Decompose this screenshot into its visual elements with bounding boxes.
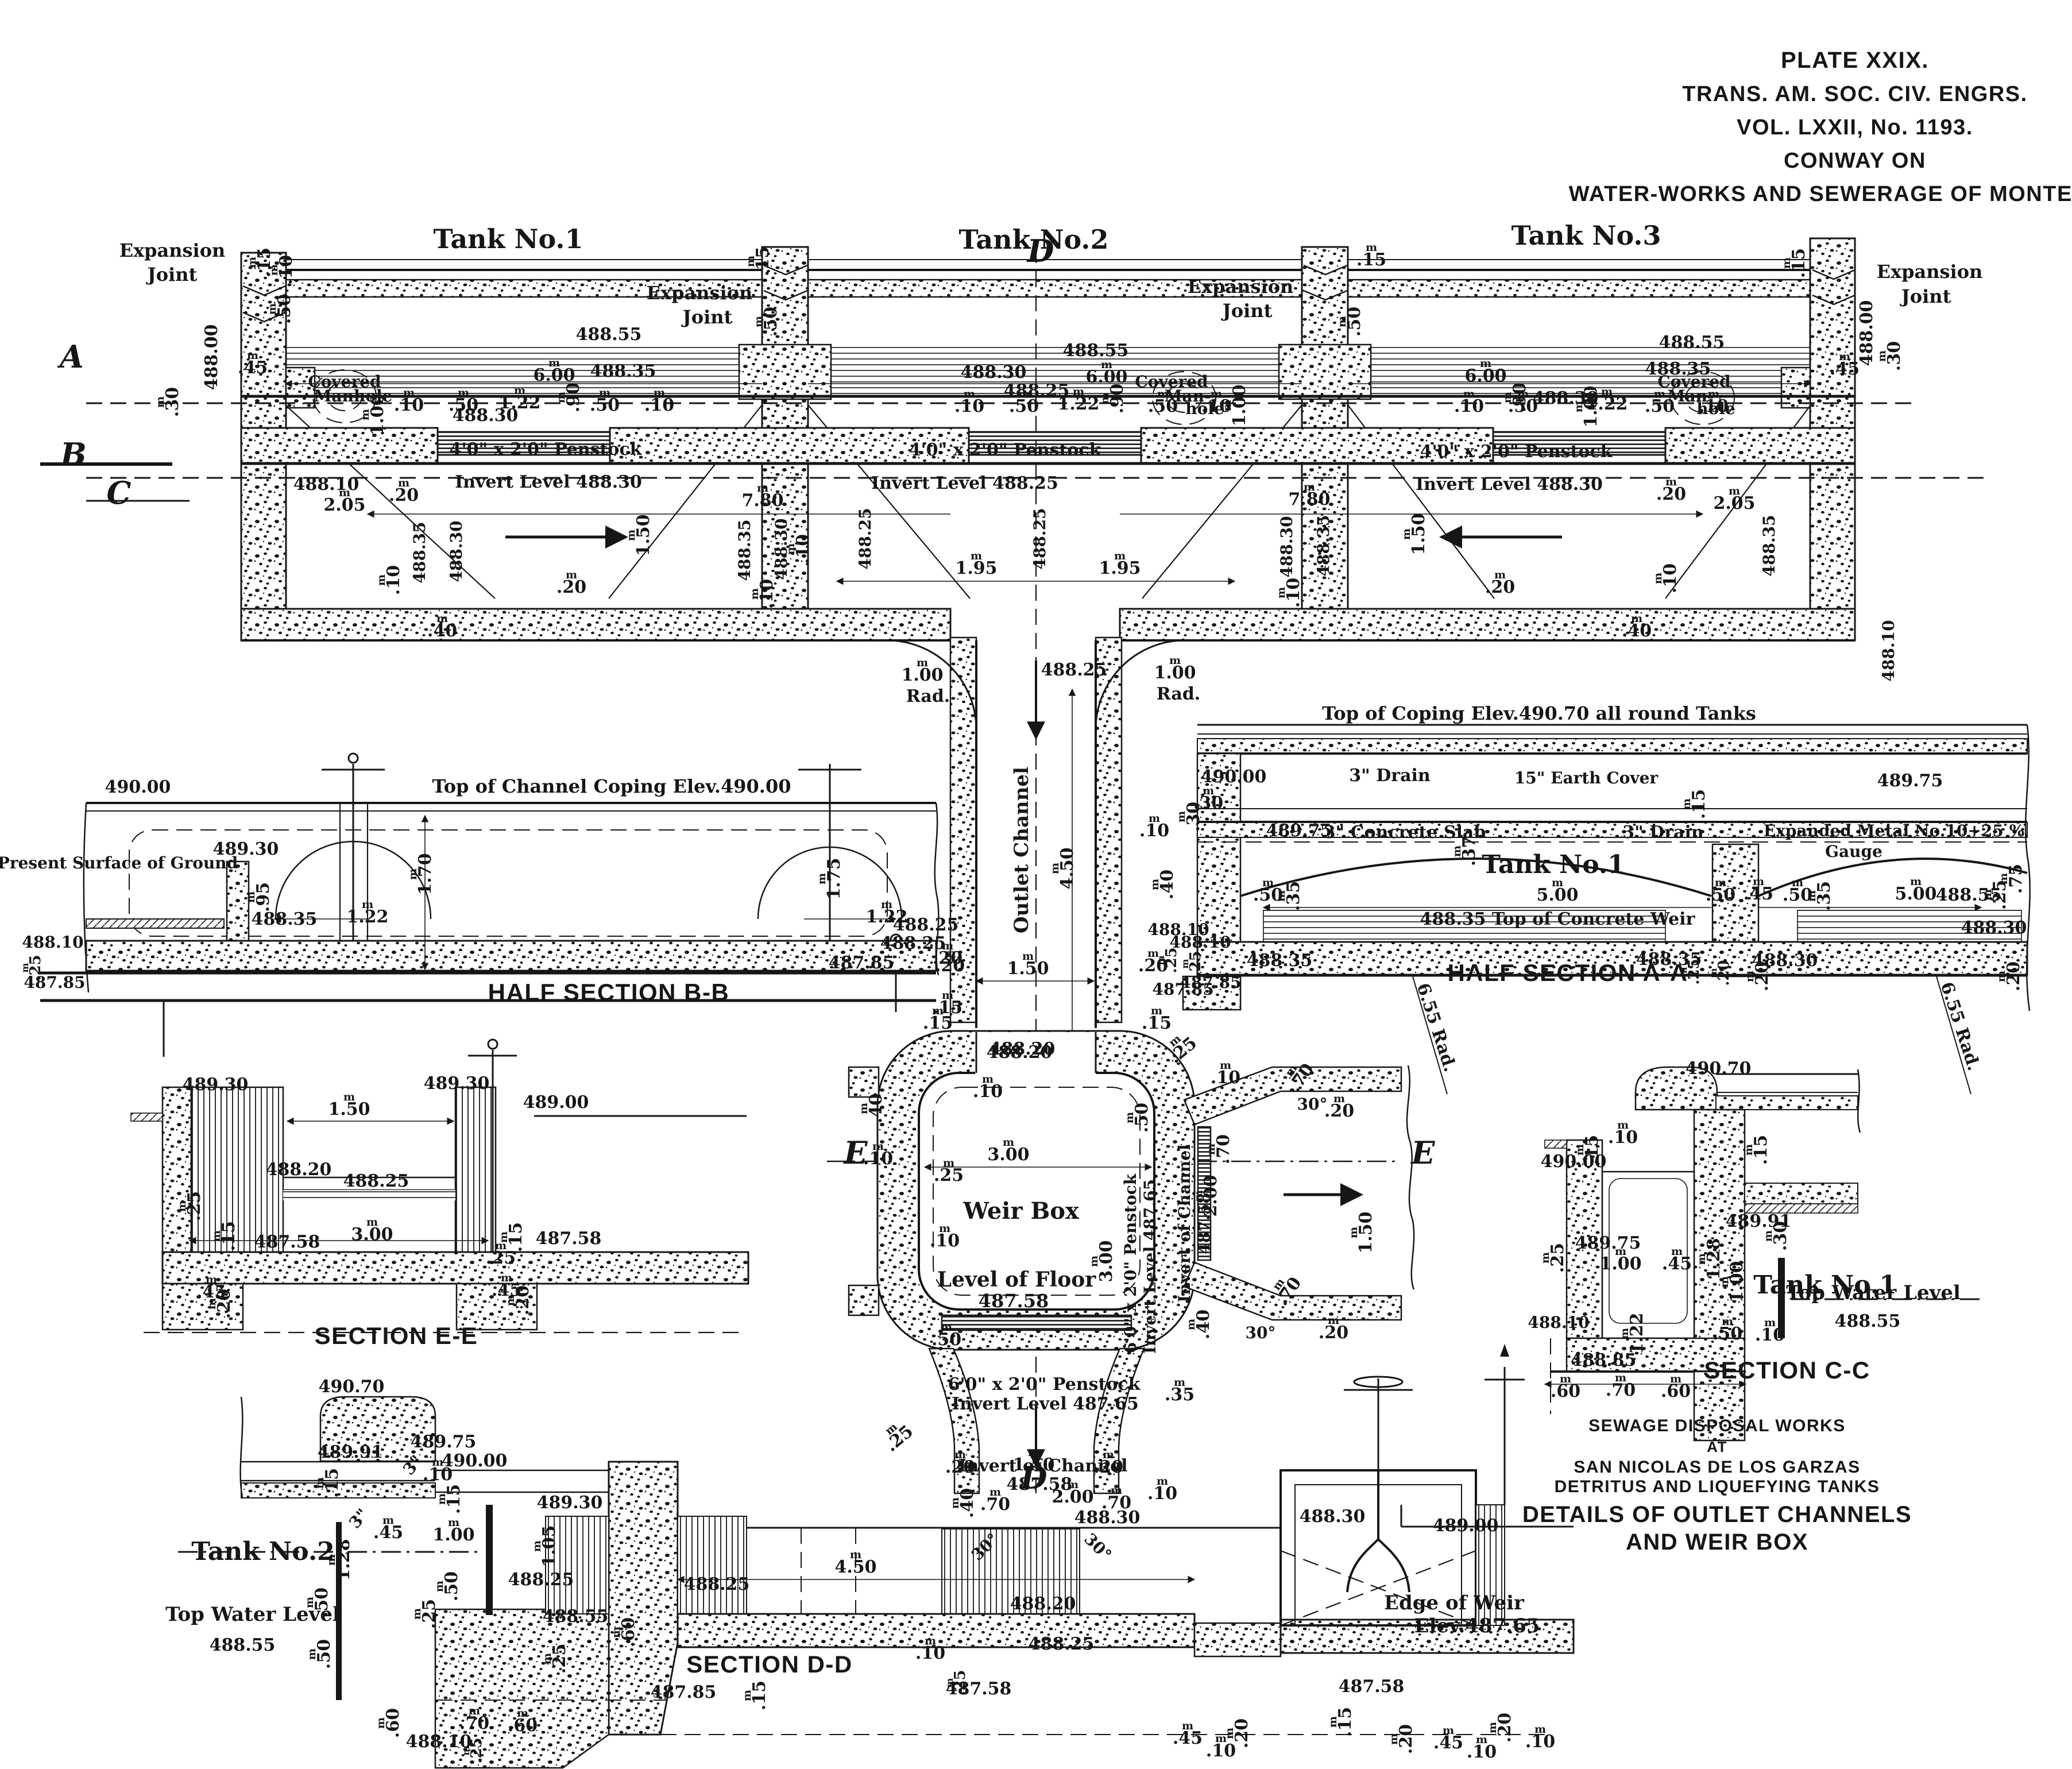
metre-mark: m — [1806, 890, 1818, 902]
label-text: 488.25 — [1029, 1634, 1095, 1654]
label-text: Tank No.1 — [434, 223, 583, 254]
metre-mark: m — [1480, 357, 1491, 370]
half_section_bb-label-13: 487.85 — [24, 973, 85, 992]
metre-mark: m — [1671, 1245, 1683, 1258]
metre-mark: m — [1223, 1728, 1236, 1739]
metre-mark: m — [599, 387, 610, 399]
metre-mark: m — [610, 1627, 623, 1638]
metre-mark: m — [1876, 350, 1888, 362]
metre-mark: m — [246, 257, 258, 268]
label-text: Expansion — [647, 282, 753, 304]
half_section_bb-label-14: 487.85 — [829, 953, 895, 973]
metre-mark: m — [1067, 1478, 1078, 1491]
metre-mark: m — [1157, 388, 1169, 400]
metre-mark: m — [314, 1477, 326, 1489]
metre-mark: m — [495, 1239, 507, 1252]
label-text: 487.85 — [651, 1682, 717, 1702]
label-text: 488.20 — [989, 1039, 1056, 1059]
plan-label-107: Rad. — [906, 686, 950, 706]
plan-label-1: Joint — [146, 264, 198, 285]
plan-label-85: Invert Level 488.30 — [1416, 474, 1603, 495]
label-text: Top of Coping Elev.490.70 all round Tank… — [1322, 702, 1756, 724]
metre-mark: m — [939, 1222, 950, 1235]
label-text: 489.30 — [213, 839, 279, 859]
plate-author: CONWAY ON — [1784, 149, 1926, 173]
metre-mark: m — [971, 550, 982, 562]
label-text: Rad. — [906, 686, 950, 706]
metre-mark: m — [1552, 876, 1563, 889]
label-text: SECTION D-D — [686, 1651, 853, 1678]
label-text: 488.25 — [508, 1570, 574, 1590]
metre-mark: m — [1275, 890, 1288, 902]
plan-label-5: Expansion — [647, 282, 753, 304]
metre-mark: m — [872, 1140, 884, 1153]
metre-mark: m — [566, 569, 577, 581]
metre-mark: m — [964, 388, 975, 400]
section_dd-label-44: 489.00 — [1433, 1516, 1499, 1536]
metre-mark: m — [1617, 1119, 1629, 1131]
metre-mark: m — [1718, 1276, 1731, 1288]
metre-mark: m — [1654, 388, 1665, 400]
label-text: 489.75 — [411, 1432, 477, 1452]
plan-label-71: 488.30 — [447, 520, 466, 582]
caption-line: SEWAGE DISPOSAL WORKS — [1588, 1416, 1846, 1435]
metre-mark: m — [752, 316, 765, 327]
half_section_aa-label-25: 488.30 — [1961, 918, 2027, 938]
label-text: 488.25 — [1041, 660, 1107, 680]
half_section_bb-label-0: 490.00 — [105, 777, 171, 797]
metre-mark: m — [1022, 950, 1034, 963]
metre-mark: m — [757, 482, 768, 495]
metre-mark: m — [448, 1516, 459, 1529]
half_section_aa-label-31: 488.10 — [1147, 920, 1209, 939]
metre-mark: m — [266, 303, 279, 315]
plan-label-22: B — [59, 436, 87, 473]
weir_box-label-40: 30° — [1246, 1323, 1276, 1342]
label-text: 489.75 — [1877, 771, 1943, 791]
label-text: 487.85 — [1152, 980, 1213, 999]
section_dd-label-2: 489.75 — [411, 1432, 477, 1452]
label-text: Joint — [1221, 300, 1273, 322]
metre-mark: m — [1780, 257, 1793, 269]
label-text: SECTION E-E — [315, 1322, 478, 1349]
label-text: 488.25 — [856, 508, 875, 569]
label-text: 15" Earth Cover — [1514, 768, 1659, 787]
plan-label-24: D — [1026, 233, 1054, 269]
section_dd-label-35: 488.30 — [1300, 1507, 1366, 1527]
label-text: 488.25 — [343, 1171, 409, 1191]
metre-mark: m — [382, 1514, 394, 1527]
section_dd-label-18: 488.55 — [210, 1635, 276, 1655]
gate-slot-hatch — [678, 1516, 747, 1614]
metre-mark: m — [917, 656, 928, 669]
metre-mark: m — [433, 1581, 446, 1592]
plan-label-12: 488.00 — [1857, 300, 1877, 366]
metre-mark: m — [1729, 485, 1740, 497]
label-text: 489.30 — [537, 1493, 603, 1513]
label-text: Invert Level 488.30 — [1416, 474, 1603, 495]
label-text: 487.58 — [1195, 1192, 1213, 1254]
label-text: Expanded Metal No.10+25 % — [1764, 821, 2024, 840]
metre-mark: m — [1615, 1372, 1626, 1384]
label-text: Invert Level 487.65 — [1141, 1179, 1159, 1354]
label-text: 490.00 — [1201, 767, 1267, 787]
caption-line: AT — [1707, 1438, 1727, 1455]
plan-label-21: A — [57, 338, 84, 375]
metre-mark: m — [815, 873, 828, 885]
metre-mark: m — [944, 1678, 955, 1687]
section_ee-label-1: 489.30 — [424, 1073, 490, 1094]
metre-mark: m — [1328, 1314, 1339, 1327]
plan-label-53: 488.30 — [961, 362, 1027, 383]
metre-mark: m — [1049, 863, 1061, 874]
label-text: D — [1026, 233, 1054, 269]
label-text: 488.35 — [735, 519, 754, 581]
metre-mark: m — [654, 387, 665, 399]
metre-mark: m — [359, 409, 372, 420]
weir-plate — [486, 1505, 493, 1615]
label-text: 30° — [1297, 1095, 1328, 1114]
label-text: 489.75 — [1266, 821, 1332, 841]
label-text: 487.58 — [254, 1232, 320, 1252]
metre-mark: m — [343, 1091, 355, 1103]
metre-mark: m — [1792, 876, 1803, 889]
metre-mark: m — [748, 588, 761, 600]
label-text: Level of Floor — [937, 1268, 1097, 1292]
section_cc-label-20: 488.10 — [1528, 1313, 1589, 1332]
metre-mark: m — [982, 1073, 994, 1086]
section_ee-label-7: 487.58 — [254, 1232, 320, 1252]
weir_box-label-21: 6'0" x 2'0" Penstock — [1121, 1173, 1140, 1353]
label-text: Invert Level 488.25 — [871, 473, 1058, 493]
metre-mark: m — [1211, 388, 1222, 400]
metre-mark: m — [1652, 573, 1664, 584]
metre-mark: m — [469, 1705, 480, 1717]
label-text: Weir Box — [962, 1198, 1080, 1225]
weir_box-label-0: 488.20 — [989, 1039, 1056, 1059]
metre-mark: m — [1205, 1144, 1217, 1155]
metre-mark: m — [461, 1745, 471, 1755]
label-text: Rad. — [1157, 684, 1200, 704]
section_dd-label-37: 488.20 — [1010, 1594, 1076, 1614]
metre-mark: m — [362, 898, 373, 911]
label-text: 489.30 — [424, 1073, 490, 1094]
metre-mark: m — [1099, 393, 1111, 404]
metre-mark: m — [514, 384, 525, 397]
metre-mark: m — [1387, 1733, 1400, 1745]
metre-mark: m — [1708, 968, 1719, 978]
label-text: Gauge — [1825, 842, 1882, 861]
section_dd-label-10: Tank No.2 — [191, 1537, 335, 1566]
metre-mark: m — [1327, 1716, 1339, 1728]
label-text: 488.30 — [1300, 1507, 1366, 1527]
metre-mark: m — [541, 1653, 554, 1664]
half_section_aa-label-0: Top of Coping Elev.490.70 all round Tank… — [1322, 702, 1756, 724]
label-text: 487.58 — [536, 1229, 602, 1249]
metre-mark: m — [1665, 476, 1677, 488]
label-text: 488.30 — [1277, 516, 1296, 577]
label-text: 488.55 — [210, 1635, 276, 1655]
metre-mark: m — [850, 1548, 861, 1561]
metre-mark: m — [925, 1635, 936, 1647]
label-text: 488.35 — [1760, 515, 1779, 576]
weir_box-label-5: 30° — [1297, 1095, 1328, 1114]
label-text: Present Surface of Ground — [0, 853, 238, 872]
metre-mark: m — [501, 1272, 512, 1284]
metre-mark: m — [1333, 1092, 1345, 1105]
weir_box-label-43: E — [1410, 1134, 1435, 1171]
label-text: 30° — [1246, 1323, 1276, 1342]
metre-mark: m — [784, 543, 797, 555]
label-text: 488.35 — [1247, 951, 1313, 971]
plan-label-84: Invert Level 488.25 — [871, 473, 1058, 493]
label-text: 3" Drain — [1349, 766, 1431, 786]
label-text: 488.10 — [22, 933, 83, 952]
plan-label-82: 4'0" x 2'0" Penstock — [1420, 442, 1613, 462]
label-text: 487.85 — [24, 973, 85, 992]
label-text: 6'0" x 2'0" Penstock — [1121, 1173, 1140, 1353]
half_section_aa-label-9: 3" Drain — [1622, 822, 1704, 843]
label-text: 488.30 — [961, 362, 1027, 383]
metre-mark: m — [1073, 385, 1084, 398]
metre-mark: m — [1742, 1144, 1755, 1156]
metre-mark: m — [1494, 569, 1506, 581]
label-text: Elev.487.65 — [1414, 1614, 1540, 1637]
metre-mark: m — [1114, 550, 1126, 562]
plan-label-81: 4'0" x 2'0" Penstock — [909, 440, 1102, 460]
section_ee-label-8: 487.58 — [536, 1229, 602, 1249]
section_cc-label-0: 490.70 — [1686, 1059, 1752, 1079]
label-text: Tank No.2 — [191, 1537, 335, 1566]
metre-mark: m — [1753, 875, 1764, 888]
label-text: Top Water Level — [165, 1603, 340, 1626]
weir_box-label-28: Invert of Channel — [958, 1456, 1127, 1476]
plan-label-8: Joint — [1221, 300, 1273, 322]
metre-mark: m — [206, 1298, 218, 1310]
metre-mark: m — [210, 1230, 223, 1242]
weir_box-label-25: Invert Level 487.65 — [952, 1394, 1139, 1414]
half_section_aa-label-4: 489.75 — [1877, 771, 1943, 791]
metre-mark: m — [1910, 875, 1922, 888]
metre-mark: m — [548, 357, 560, 369]
plan-label-29: 488.55 — [576, 325, 642, 345]
caption-title: DETAILS OF OUTLET CHANNELS — [1522, 1502, 1912, 1527]
label-text: 488.55 — [1063, 341, 1129, 361]
section_dd-label-13: 489.30 — [537, 1493, 603, 1513]
plan-label-31: 488.55 — [1659, 333, 1725, 353]
label-text: 487.85 — [829, 953, 895, 973]
plan-label-32: 488.35 — [590, 361, 656, 381]
label-text: 488.30 — [447, 520, 466, 582]
label-text: Edge of Weir — [1384, 1592, 1525, 1614]
label-text: A — [57, 338, 84, 375]
metre-mark: m — [943, 1157, 954, 1169]
plan-label-76: 488.35 — [1760, 515, 1779, 576]
metre-mark: m — [1111, 1484, 1122, 1497]
metre-mark: m — [1534, 1723, 1546, 1736]
weir_box-label-19: 487.58 — [979, 1290, 1049, 1312]
label-text: Outlet Channel — [1010, 767, 1033, 933]
label-text: 488.35 — [410, 522, 429, 583]
label-text: 488.00 — [202, 325, 222, 391]
label-text: 3" Drain — [1622, 822, 1704, 843]
metre-mark: m — [1695, 1253, 1708, 1265]
metre-mark: m — [1151, 1005, 1162, 1017]
plate-society: TRANS. AM. SOC. CIV. ENGRS. — [1682, 82, 2027, 106]
metre-mark: m — [555, 392, 567, 403]
metre-mark: m — [1451, 845, 1463, 857]
metre-mark: m — [176, 1200, 188, 1212]
section_dd-label-0: 490.70 — [319, 1377, 385, 1397]
plan-label-30: 488.55 — [1063, 341, 1129, 361]
label-text: 488.25 — [893, 915, 959, 935]
half_section_aa-label-33: 487.85 — [1152, 980, 1213, 999]
metre-mark: m — [245, 891, 257, 903]
engraving-plate: PLATE XXIX. TRANS. AM. SOC. CIV. ENGRS. … — [0, 0, 2072, 1769]
metre-mark: m — [268, 264, 280, 276]
metre-mark: m — [366, 1216, 378, 1229]
label-text: 6'0" x 2'0" Penstock — [948, 1374, 1141, 1395]
metre-mark: m — [1101, 358, 1112, 371]
section_dd-label-17: Top Water Level — [165, 1603, 340, 1626]
metre-mark: m — [1722, 1315, 1733, 1328]
label-text: 488.00 — [1857, 300, 1877, 366]
label-text: Expansion — [119, 240, 226, 261]
metre-mark: m — [504, 1295, 517, 1306]
plan-label-11: 488.00 — [202, 325, 222, 391]
weir_box-label-16: Weir Box — [962, 1198, 1080, 1225]
label-text: 488.35 Top of Concrete Weir — [1420, 909, 1696, 929]
metre-mark: m — [741, 1690, 753, 1701]
metre-mark: m — [374, 1717, 387, 1729]
metre-mark: m — [941, 1321, 952, 1334]
half_section_aa-label-3: 15" Earth Cover — [1514, 768, 1659, 787]
label-text: Joint — [681, 306, 733, 328]
label-text: 489.30 — [183, 1075, 249, 1095]
section_dd-label-45: SECTION D-D — [686, 1651, 853, 1678]
metre-mark: m — [411, 1608, 423, 1620]
section_ee-label-5: 488.25 — [343, 1171, 409, 1191]
label-text: 487.58 — [1339, 1677, 1405, 1697]
metre-mark: m — [1262, 876, 1274, 889]
metre-mark: m — [1018, 388, 1030, 400]
label-text: Invert Level 487.65 — [952, 1394, 1139, 1414]
plan-label-74: 488.30 — [1277, 516, 1296, 577]
metre-mark: m — [1174, 1376, 1185, 1389]
label-text: 4'0" x 2'0" Penstock — [909, 440, 1102, 460]
section_cc-label-16: Top Water Level — [1786, 1281, 1961, 1304]
label-text: 4'0" x 2'0" Penstock — [450, 439, 643, 459]
section_dd-label-42: Edge of Weir — [1384, 1592, 1525, 1614]
metre-mark: m — [339, 486, 350, 499]
metre-mark: m — [1155, 955, 1166, 965]
weir_box-label-18: Level of Floor — [937, 1268, 1097, 1292]
half_section_bb-label-1: Top of Channel Coping Elev.490.00 — [432, 775, 791, 797]
plan-label-7: Expansion — [1188, 276, 1294, 298]
label-text: 490.70 — [319, 1377, 385, 1397]
plan-label-109: Rad. — [1157, 684, 1200, 704]
metre-mark: m — [247, 349, 258, 362]
metre-mark: m — [1981, 889, 1994, 901]
label-text: 488.25 — [1030, 508, 1049, 569]
metre-mark: m — [1708, 388, 1719, 400]
label-text: 488.55 — [543, 1606, 609, 1627]
label-text: 488.10 — [1528, 1313, 1589, 1332]
plate-number: PLATE XXIX. — [1781, 48, 1929, 73]
plate-subject: WATER-WORKS AND SEWERAGE OF MONTERREY. — [1569, 182, 2072, 206]
label-text: 488.35 — [1314, 515, 1333, 576]
label-text: 488.55 — [1659, 333, 1725, 353]
label-text: 489.75 — [1575, 1233, 1641, 1253]
plan-label-9: Expansion — [1877, 261, 1983, 283]
metre-mark: m — [1539, 1252, 1552, 1264]
section_cc-label-17: 488.55 — [1835, 1311, 1901, 1331]
section_cc-label-7: 489.75 — [1575, 1233, 1641, 1253]
plan-label-2: Tank No.1 — [434, 223, 583, 254]
metre-mark: m — [1574, 1144, 1586, 1156]
section_dd-label-26: 487.85 — [651, 1682, 717, 1702]
metre-mark: m — [1601, 385, 1613, 398]
caption-title: AND WEIR BOX — [1626, 1529, 1808, 1555]
label-text: Top Water Level — [1786, 1281, 1961, 1304]
label-text: 489.00 — [523, 1092, 589, 1113]
plate-volume: VOL. LXXII, No. 1193. — [1737, 115, 1973, 140]
caption-line: SAN NICOLAS DE LOS GARZAS — [1574, 1458, 1860, 1477]
metre-mark: m — [1486, 1722, 1499, 1733]
plan-label-77: 488.10 — [1879, 620, 1898, 681]
metre-mark: m — [1744, 971, 1756, 982]
half_section_aa-label-10: Expanded Metal No.10+25 % — [1764, 821, 2024, 840]
plan-label-110: 488.25 — [1041, 660, 1107, 680]
label-text: 4'0" x 2'0" Penstock — [1420, 442, 1613, 462]
half_section_bb-label-11: 488.10 — [22, 933, 83, 952]
plan-label-79: 488.25 — [1030, 508, 1049, 569]
section_dd-label-25: 488.25 — [684, 1574, 750, 1594]
metre-mark: m — [1175, 811, 1188, 822]
metre-mark: m — [1631, 612, 1642, 625]
metre-mark: m — [1476, 1733, 1487, 1746]
ground-hatch — [86, 919, 224, 928]
plan-label-83: Invert Level 488.30 — [455, 472, 642, 492]
label-text: 488.25 — [684, 1574, 750, 1594]
metre-mark: m — [1149, 812, 1160, 825]
half_section_bb-label-2: Present Surface of Ground — [0, 853, 238, 872]
half_section_aa-label-11: Gauge — [1825, 842, 1882, 861]
label-text: 488.10 — [1147, 920, 1209, 939]
metre-mark: m — [1088, 1256, 1100, 1267]
section_dd-label-39: 487.58 — [1339, 1677, 1405, 1697]
label-text: 488.10 — [1879, 620, 1898, 681]
label-text: Expansion — [1188, 276, 1294, 298]
half_section_aa-label-26: 488.35 — [1247, 951, 1313, 971]
metre-mark: m — [1443, 1724, 1454, 1737]
plan-label-70: 488.35 — [410, 522, 429, 583]
section_ee-label-4: 488.20 — [266, 1160, 332, 1180]
section_dd-label-21: 488.55 — [543, 1606, 609, 1627]
metre-mark: m — [949, 1497, 961, 1509]
plan-label-6: Joint — [681, 306, 733, 328]
label-text: Top of Channel Coping Elev.490.00 — [432, 775, 791, 797]
section_dd-label-24: 488.25 — [508, 1570, 574, 1590]
metre-mark: m — [1762, 1230, 1775, 1242]
metre-mark: m — [1560, 1373, 1571, 1385]
metre-mark: m — [531, 1540, 543, 1552]
metre-mark: m — [857, 1103, 870, 1114]
plan-label-4: Tank No.3 — [1512, 220, 1661, 251]
label-text: 489.00 — [1433, 1516, 1499, 1536]
metre-mark: m — [432, 1456, 443, 1469]
label-text: Expansion — [1877, 261, 1983, 283]
